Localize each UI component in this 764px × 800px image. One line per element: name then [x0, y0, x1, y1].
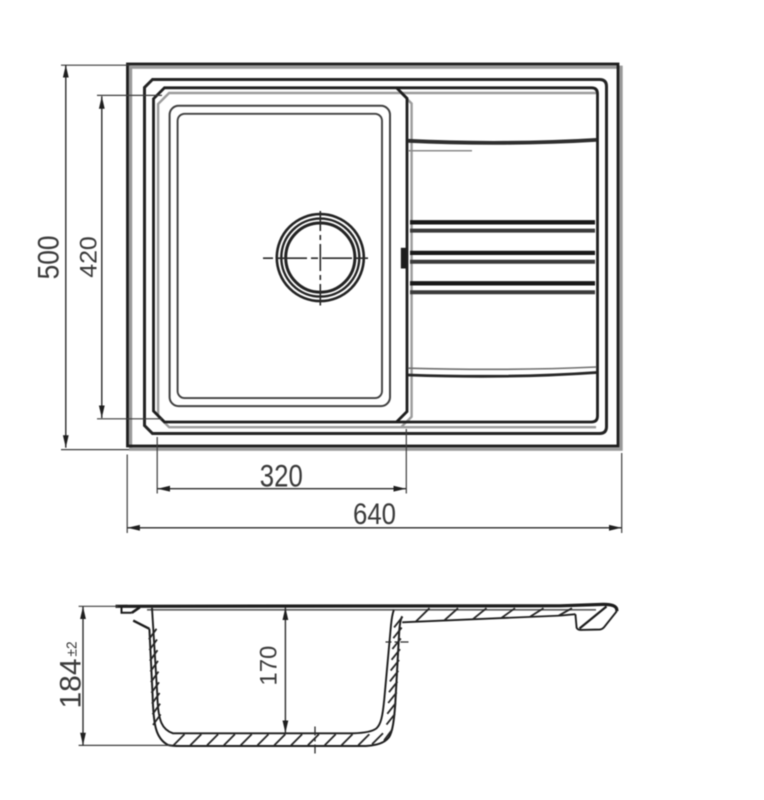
svg-text:420: 420: [76, 236, 103, 278]
svg-text:184: 184: [55, 659, 88, 709]
svg-text:320: 320: [260, 458, 303, 494]
svg-text:170: 170: [256, 646, 283, 686]
svg-text:±2: ±2: [64, 642, 81, 657]
svg-text:500: 500: [33, 235, 66, 279]
svg-text:640: 640: [353, 498, 396, 531]
